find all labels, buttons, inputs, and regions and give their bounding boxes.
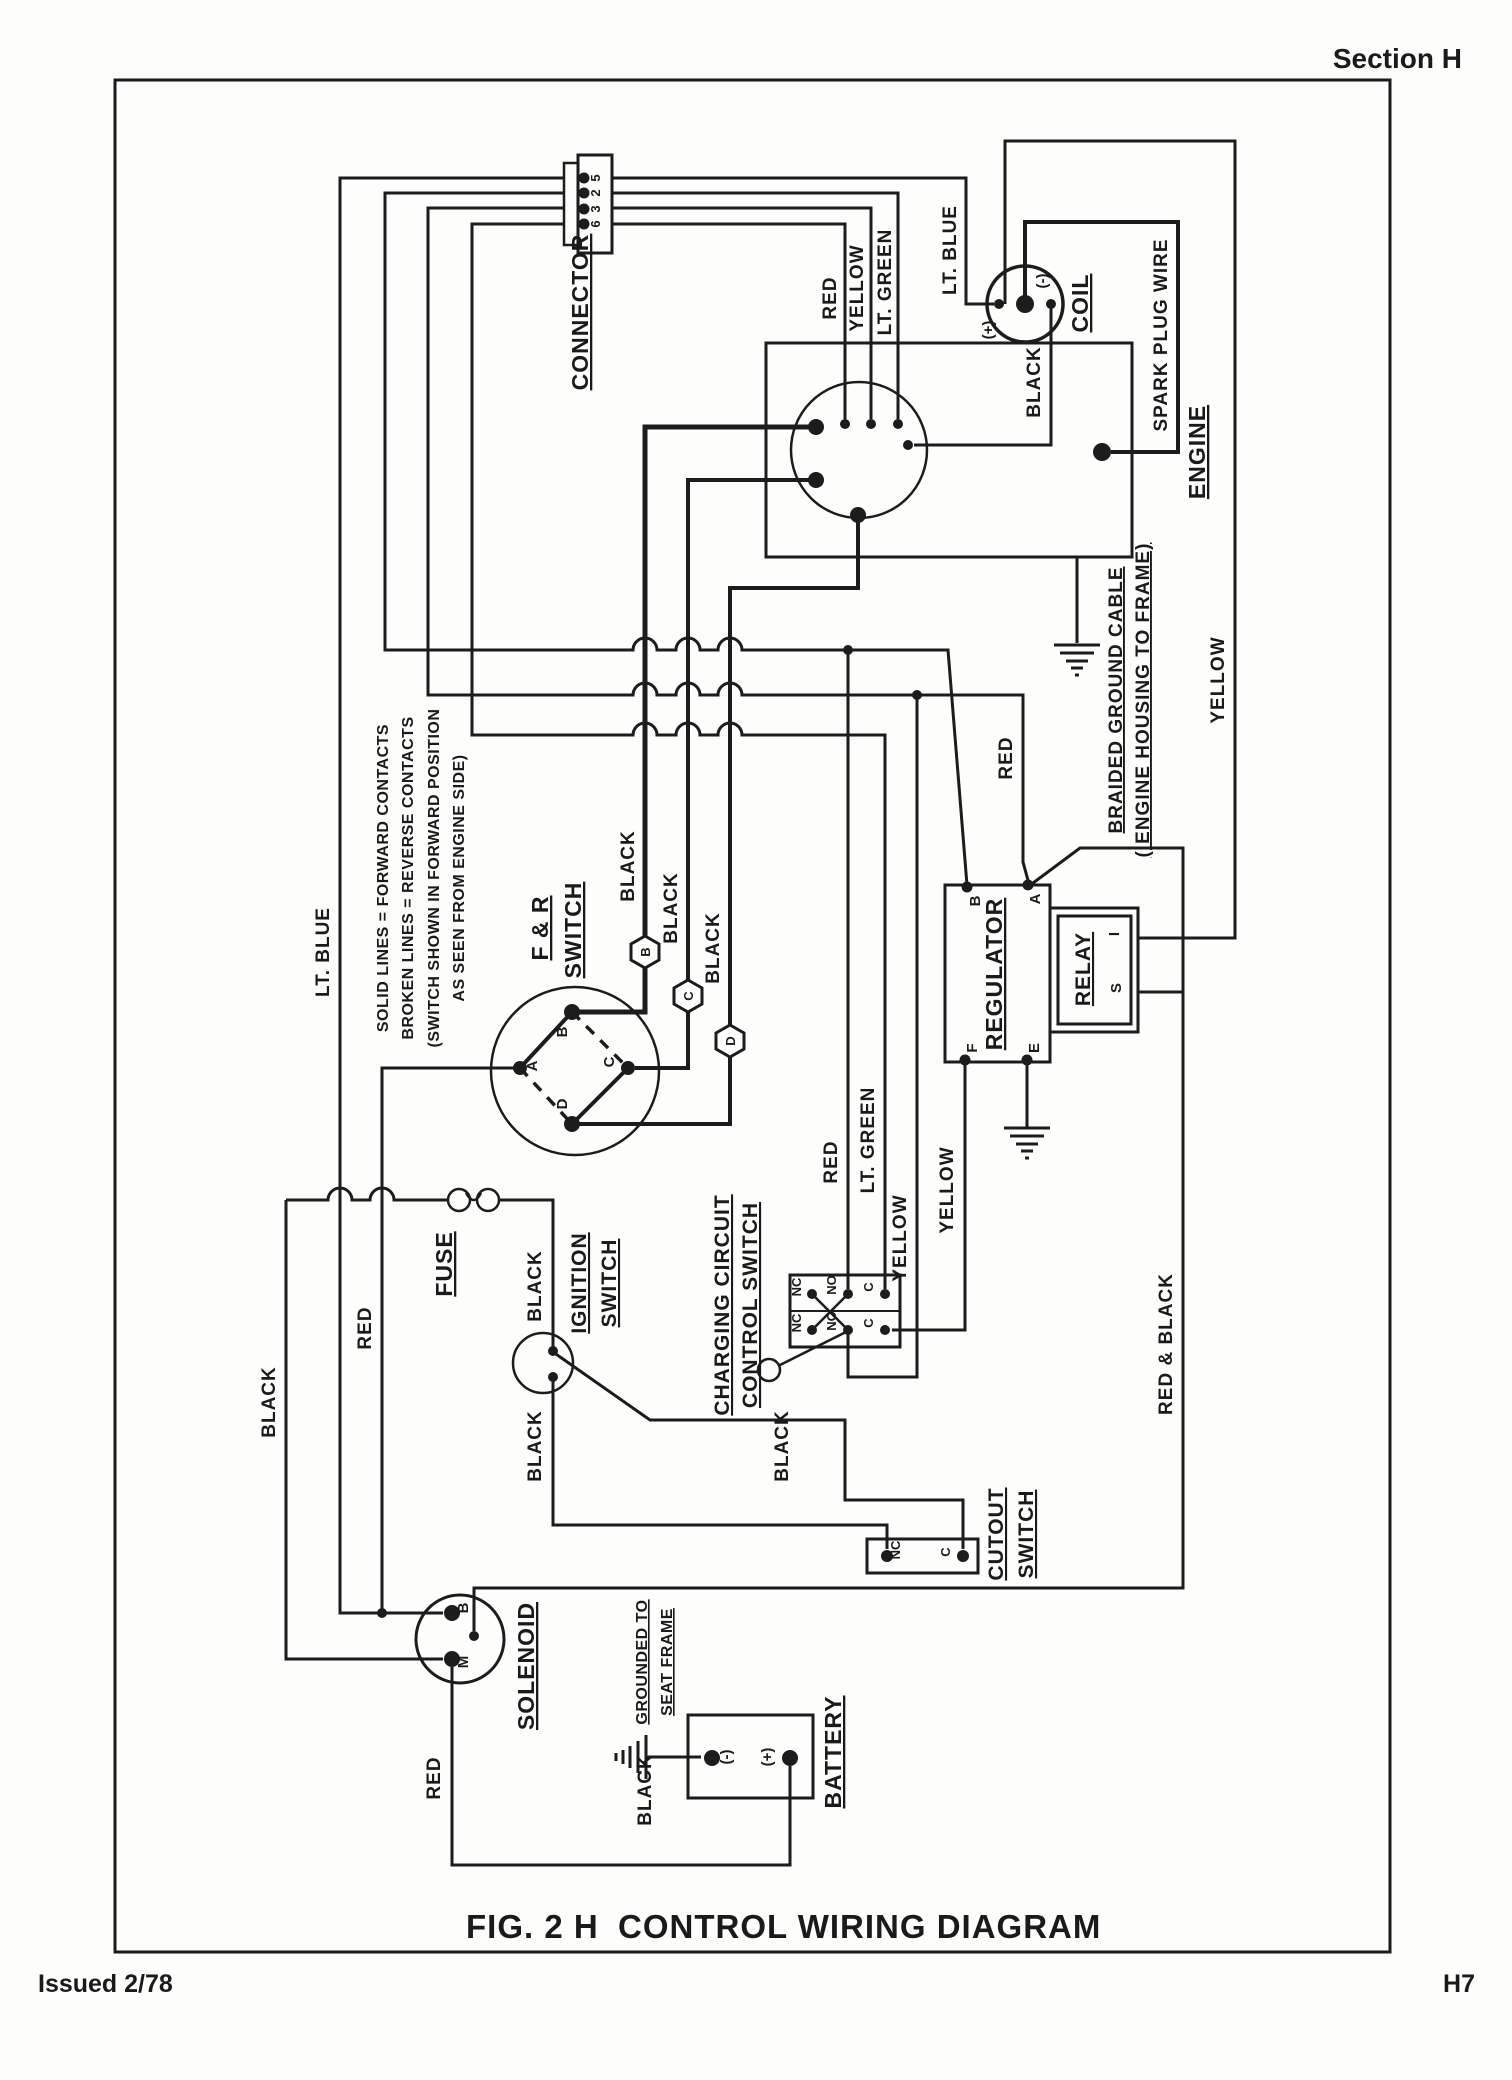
wire-label-black-hex-c: BLACK [661, 872, 682, 944]
charging-switch-label-1: CHARGING CIRCUIT [711, 1194, 734, 1415]
junction-dot [843, 645, 853, 655]
wire-label-red-solenoid: RED [424, 1756, 445, 1799]
relay-label: RELAY [1072, 932, 1095, 1006]
wire-label-black-battery: BLACK [635, 1754, 656, 1826]
solenoid-component: B M SOLENOID [416, 1595, 539, 1730]
connector-bracket [564, 163, 578, 245]
caption-title: CONTROL WIRING DIAGRAM [618, 1908, 1101, 1945]
solenoid-b-label: B [455, 1602, 472, 1613]
solenoid-m-label: M [455, 1656, 472, 1669]
fr-note-line: BROKEN LINES = REVERSE CONTACTS [400, 716, 417, 1039]
regulator-terminal-b [962, 882, 973, 893]
regulator-terminal-f [960, 1055, 971, 1066]
fr-terminal-b-label: B [554, 1026, 571, 1037]
wiring-diagram-canvas: Section H Issued 2/78 H7 FIG. 2 H CONTRO… [0, 0, 1512, 2080]
issued-date: Issued 2/78 [38, 1970, 173, 1998]
battery-component: (-) (+) BATTERY GROUNDED TO SEAT FRAME [634, 1599, 846, 1808]
braided-ground-label-2: ( ENGINE HOUSING TO FRAME) [1133, 543, 1154, 858]
coil-minus-label: (-) [1034, 274, 1051, 289]
charging-switch-label-2: CONTROL SWITCH [739, 1202, 762, 1408]
wire-fuse-line [286, 1188, 553, 1348]
ignition-switch-label-2: SWITCH [598, 1239, 621, 1328]
fr-terminal-d [564, 1116, 580, 1132]
fr-terminal-c-label: C [601, 1056, 618, 1067]
battery-ground-note-2: SEAT FRAME [659, 1608, 676, 1716]
charging-nc2-label: NC [789, 1313, 804, 1332]
fr-switch-label-2: SWITCH [560, 882, 586, 979]
charging-c2-label: C [861, 1318, 876, 1328]
engine-points-dot [903, 440, 913, 450]
fr-terminal-a-label: A [524, 1060, 541, 1071]
wire-label-lt-blue-left: LT. BLUE [313, 907, 334, 997]
junction-dot [912, 690, 922, 700]
spark-plug-dot [1093, 443, 1111, 461]
engine-label: ENGINE [1184, 405, 1210, 499]
wire-label-lt-blue-top: LT. BLUE [940, 205, 961, 295]
wire-label-black-hex-d: BLACK [703, 912, 724, 984]
wire-pin5-to-coil-plus [584, 178, 994, 304]
wire-label-black-hex-b: BLACK [618, 830, 639, 902]
fr-note-line: (SWITCH SHOWN IN FORWARD POSITION [426, 709, 443, 1048]
connector-pin-label: 6 [588, 220, 603, 227]
hex-c-label: C [681, 991, 696, 1001]
caption-figure: FIG. 2 H [466, 1908, 599, 1945]
regulator-component: B A F E REGULATOR [945, 880, 1050, 1066]
fuse-cap [448, 1189, 470, 1211]
engine-terminal-dot [840, 419, 850, 429]
charging-nc2-dot [807, 1325, 817, 1335]
wire-label-yellow-top: YELLOW [847, 244, 868, 331]
fr-note-line: SOLID LINES = FORWARD CONTACTS [375, 724, 392, 1032]
connector-component: 5 2 3 6 CONNECTOR [564, 155, 612, 390]
ignition-switch-body [513, 1333, 573, 1393]
engine-terminal-dot [808, 472, 824, 488]
fr-note-line: AS SEEN FROM ENGINE SIDE) [451, 754, 468, 1001]
connector-pin-label: 3 [588, 205, 603, 212]
wire-label-yellow-regulator-f: YELLOW [937, 1146, 958, 1233]
coil-plus-terminal [994, 299, 1004, 309]
fr-terminal-c [621, 1061, 635, 1075]
connector-pin-label: 5 [588, 174, 603, 181]
spark-plug-wire-label: SPARK PLUG WIRE [1151, 238, 1172, 431]
wire-label-black-ignition-bottom: BLACK [525, 1410, 546, 1482]
wire-solenoid-m-to-battery-plus [452, 1661, 790, 1865]
wire-label-black-ignition-top: BLACK [525, 1250, 546, 1322]
charging-c1-dot [880, 1289, 890, 1299]
regulator-label: REGULATOR [981, 898, 1007, 1051]
cutout-c-dot [957, 1550, 969, 1562]
junction-dot [377, 1608, 387, 1618]
wire-label-red-charging: RED [821, 1140, 842, 1183]
battery-label: BATTERY [820, 1695, 846, 1808]
regulator-a-label: A [1027, 893, 1044, 904]
wire-pin6-red [584, 224, 845, 419]
engine-terminal-dot [850, 507, 866, 523]
engine-terminal-dot [893, 419, 903, 429]
charging-no2-label: NO [824, 1311, 839, 1331]
regulator-ground-icon [1004, 1128, 1050, 1158]
coil-minus-terminal [1046, 299, 1056, 309]
fuse-component: FUSE [431, 1189, 499, 1297]
wire-label-red-and-black: RED & BLACK [1156, 1273, 1177, 1415]
battery-ground-note-1: GROUNDED TO [634, 1599, 651, 1724]
charging-nc1-dot [807, 1289, 817, 1299]
engine-ground-icon [1054, 645, 1100, 675]
page-number: H7 [1443, 1970, 1475, 1998]
fuse-cap [477, 1189, 499, 1211]
wire-label-lt-green-charging: LT. GREEN [858, 1087, 879, 1194]
cutout-c-label: C [938, 1547, 953, 1557]
charging-c1-label: C [861, 1282, 876, 1292]
wire-label-lt-green-top: LT. GREEN [875, 229, 896, 336]
charging-no1-dot [843, 1289, 853, 1299]
connector-pin-label: 2 [588, 189, 603, 196]
wire-label-yellow-charging: YELLOW [890, 1194, 911, 1281]
page-frame: Section H Issued 2/78 H7 FIG. 2 H CONTRO… [38, 43, 1475, 1998]
cutout-nc-label: NC [888, 1540, 903, 1559]
battery-minus-label: (-) [718, 1750, 735, 1765]
coil-label: COIL [1067, 274, 1093, 333]
wire-bus-735-lt-green-to-c1 [472, 224, 885, 1289]
charging-switch-component: NC NO C NC NO C CHARGING CIRCUIT CONTROL… [711, 1194, 900, 1415]
engine-magneto-circle [791, 382, 927, 518]
hex-b-label: B [638, 947, 653, 956]
charging-nc1-label: NC [789, 1277, 804, 1296]
fr-switch-label-1: F & R [527, 895, 553, 960]
hex-d-label: D [723, 1036, 738, 1045]
regulator-e-label: E [1026, 1043, 1043, 1053]
braided-ground-label-1: BRAIDED GROUND CABLE [1106, 567, 1127, 834]
solenoid-label: SOLENOID [513, 1602, 539, 1730]
wire-label-black-left: BLACK [259, 1366, 280, 1438]
wire-black-left-to-solenoid-m [286, 1200, 443, 1659]
battery-plus-label: (+) [759, 1748, 776, 1767]
engine-terminal-dot [866, 419, 876, 429]
scanned-diagram-page: Section H Issued 2/78 H7 FIG. 2 H CONTRO… [0, 0, 1512, 2080]
cutout-switch-label-2: SWITCH [1015, 1490, 1038, 1579]
wire-thick-engine-to-fr-b [579, 427, 816, 1012]
relay-s-label: S [1108, 983, 1125, 993]
ignition-terminal-dot [548, 1346, 558, 1356]
wire-label-red-left: RED [355, 1306, 376, 1349]
cutout-switch-label-1: CUTOUT [985, 1487, 1008, 1580]
wire-label-red-top: RED [820, 276, 841, 319]
regulator-terminal-a [1023, 880, 1034, 891]
fr-terminal-b [564, 1004, 580, 1020]
relay-component: RELAY I S [1050, 908, 1138, 1032]
engine-terminal-dot [808, 419, 824, 435]
ignition-terminal-dot [548, 1372, 558, 1382]
coil-tower-terminal [1016, 295, 1034, 313]
engine-box [766, 343, 1132, 557]
wire-label-black-cutout-feed: BLACK [772, 1410, 793, 1482]
coil-component: (+) (-) COIL [980, 266, 1093, 342]
section-header: Section H [1333, 43, 1462, 74]
battery-plus-dot [782, 1750, 798, 1766]
wire-engine-to-fr-c [635, 480, 816, 1068]
charging-no2-dot [843, 1325, 853, 1335]
wire-label-black-coil: BLACK [1024, 346, 1045, 418]
fuse-label: FUSE [431, 1231, 457, 1296]
regulator-terminal-e [1022, 1055, 1033, 1066]
solenoid-small-terminal [469, 1631, 479, 1641]
diagram-border [115, 80, 1390, 1952]
regulator-f-label: F [964, 1043, 981, 1052]
coil-plus-label: (+) [980, 321, 997, 340]
wire-label-red-regulator: RED [996, 736, 1017, 779]
relay-i-label: I [1106, 932, 1123, 936]
ignition-switch-label-1: IGNITION [568, 1232, 591, 1333]
wire-red-left-fr-a [382, 1068, 520, 1613]
wire-label-yellow-right: YELLOW [1208, 636, 1229, 723]
fr-terminal-d-label: D [554, 1098, 571, 1109]
charging-no1-label: NO [824, 1275, 839, 1295]
charging-c2-dot [880, 1325, 890, 1335]
connector-label: CONNECTOR [567, 234, 593, 391]
